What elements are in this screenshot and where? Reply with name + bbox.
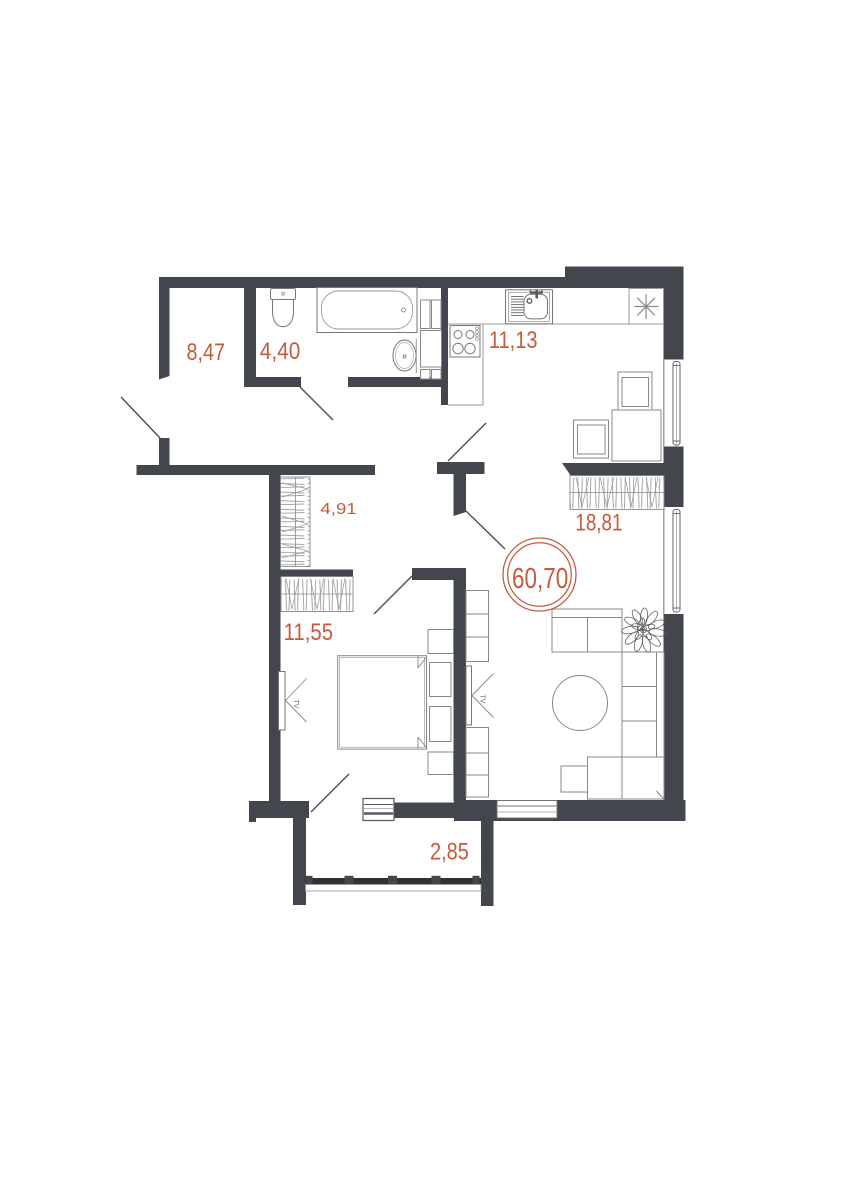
svg-text:8,47: 8,47: [187, 339, 226, 366]
svg-text:4,91: 4,91: [320, 501, 356, 518]
svg-text:11,55: 11,55: [284, 619, 334, 646]
svg-text:11,13: 11,13: [489, 327, 538, 354]
svg-text:2,85: 2,85: [430, 839, 469, 866]
svg-text:TV: TV: [479, 695, 486, 704]
svg-text:4,40: 4,40: [260, 338, 301, 365]
svg-text:18,81: 18,81: [575, 510, 622, 537]
svg-text:60,70: 60,70: [512, 563, 568, 595]
svg-text:TV: TV: [292, 700, 299, 709]
